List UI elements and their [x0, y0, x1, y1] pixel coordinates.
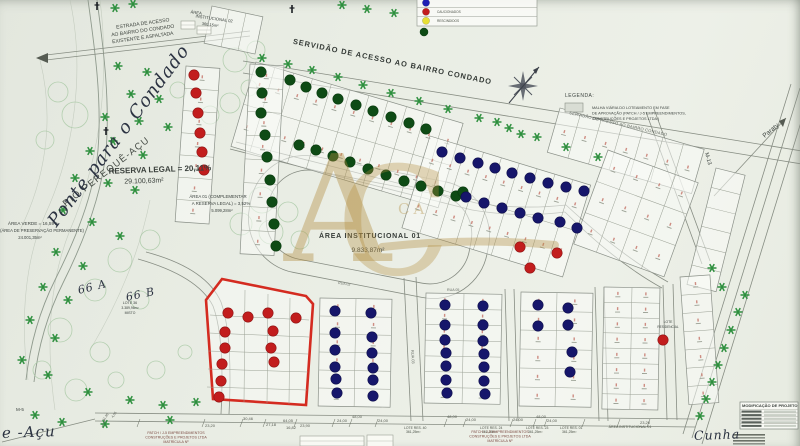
map-label: 24,00	[547, 418, 558, 423]
map-label: 27,18	[266, 422, 277, 427]
tree-center	[711, 381, 713, 383]
tree-icon	[129, 0, 138, 8]
tree-icon	[475, 114, 484, 122]
map-label: DE APROVAÇÃO (PATCH / J-5 EMPREENDIMENTO…	[592, 111, 686, 116]
lot-number-mark	[194, 186, 196, 189]
tree-center	[55, 251, 57, 253]
tree-center	[117, 65, 119, 67]
tree-center	[711, 267, 713, 269]
contour-line	[90, 200, 150, 350]
canopy-circle	[65, 379, 87, 401]
lot-text-mark	[642, 388, 647, 389]
tree-icon	[741, 291, 750, 299]
lot-status-dot-red	[525, 263, 535, 273]
canopy-circle	[291, 231, 309, 249]
tree-icon	[104, 179, 113, 187]
tree-icon	[116, 232, 125, 240]
lot-text-mark	[615, 327, 620, 328]
road-line	[404, 278, 411, 421]
lot-number-mark	[262, 145, 264, 148]
lot-text-mark	[642, 358, 647, 359]
tree-icon	[505, 124, 514, 132]
lot-status-dot-dark_green	[257, 88, 267, 98]
map-label: 23,90	[300, 423, 311, 428]
tree-icon	[493, 118, 502, 126]
lot-status-dot-dark_green	[351, 100, 361, 110]
lot-number-mark	[643, 399, 644, 402]
lot-number-mark	[574, 318, 575, 321]
title-block-cell	[742, 411, 762, 413]
lot-number-mark	[615, 399, 616, 402]
lot-status-dot-dark_green	[333, 94, 343, 104]
tree-center	[597, 156, 599, 158]
compass-rose	[508, 67, 539, 103]
lot-status-dot-navy	[561, 182, 571, 192]
tree-center	[447, 108, 449, 110]
lot-status-dot-dark_green	[386, 112, 396, 122]
legend-box: CAUCIONADOSRESCINDIDOS	[417, 0, 537, 36]
map-label: 48,00	[447, 414, 458, 419]
legend-dot	[422, 8, 429, 15]
tree-icon	[338, 1, 347, 9]
tree-center	[29, 319, 31, 321]
lot-number-mark	[337, 340, 338, 343]
canopy-circle	[36, 131, 54, 149]
tree-icon	[111, 4, 120, 12]
lot-number-mark	[259, 192, 261, 195]
lot-status-dot-navy	[543, 178, 553, 188]
map-label: PATCH / J-5 EMPREENDIMENTOS	[147, 431, 205, 435]
lot-number-mark	[702, 391, 704, 394]
canopy-circle	[140, 230, 160, 250]
tree-icon	[126, 396, 135, 404]
lot-status-dot-navy	[440, 335, 450, 345]
lot-status-dot-dark_green	[345, 157, 355, 167]
lot-status-dot-dark_green	[368, 106, 378, 116]
tree-center	[536, 136, 538, 138]
lot-text-mark	[642, 373, 647, 374]
lot-number-mark	[696, 300, 698, 303]
map-label: RUA 03	[410, 350, 416, 365]
road-line	[673, 284, 677, 420]
lot-status-dot-navy	[330, 345, 340, 355]
lot-number-mark	[695, 282, 697, 285]
map-label: A RESERVA LEGAL) = 3,52%	[192, 201, 251, 206]
lot-status-dot-red	[266, 343, 276, 353]
canopy-circle	[90, 342, 110, 362]
lot-text-mark	[571, 399, 576, 400]
lot-status-dot-dark_green	[294, 140, 304, 150]
lot-status-dot-navy	[533, 300, 543, 310]
tree-center	[311, 69, 313, 71]
tree-center	[195, 401, 197, 403]
lot-status-dot-navy	[479, 376, 489, 386]
map-label: 5.099,28m²	[211, 208, 233, 213]
tree-center	[162, 404, 164, 406]
lot-number-mark	[261, 169, 263, 172]
lot-status-dot-navy	[565, 367, 575, 377]
lot-status-dot-red	[193, 108, 203, 118]
lot-status-dot-navy	[515, 208, 525, 218]
lot-number-mark	[574, 299, 575, 302]
lot-status-dot-red	[243, 312, 253, 322]
map-label: CONSTRUÇÕES E PROJETOS LTDA )	[592, 116, 660, 121]
lot-status-dot-navy	[497, 203, 507, 213]
tree-center	[142, 154, 144, 156]
lot-text-mark	[615, 312, 620, 313]
map-label: 4,05	[111, 411, 118, 419]
legend-outside-green-dot	[420, 28, 428, 36]
lot-status-dot-dark_green	[311, 145, 321, 155]
lot-status-dot-dark_green	[262, 152, 272, 162]
map-label: PATCH / J-5 EMPREENDIMENTOS	[471, 430, 529, 434]
tree-center	[146, 71, 148, 73]
map-label: 48,00	[352, 414, 363, 419]
map-label: ÁREA INSTITUCIONAL 01	[319, 231, 421, 240]
title-block-cell	[764, 414, 796, 416]
tree-icon	[533, 133, 542, 141]
lot-text-mark	[571, 380, 576, 381]
tree-center	[169, 419, 171, 421]
lot-status-dot-red	[191, 88, 201, 98]
tree-center	[104, 423, 106, 425]
map-label: 24,00	[466, 417, 477, 422]
tree-center	[87, 391, 89, 393]
tree-icon	[58, 418, 67, 426]
lot-status-dot-navy	[490, 163, 500, 173]
lot-status-dot-navy	[331, 374, 341, 384]
road-line	[663, 285, 667, 420]
lot-status-dot-navy	[567, 347, 577, 357]
tree-center	[47, 374, 49, 376]
map-label: 361,25m²	[406, 430, 421, 434]
lot-status-dot-navy	[478, 336, 488, 346]
tree-icon	[192, 398, 201, 406]
lot-status-dot-dark_green	[265, 175, 275, 185]
lot-status-dot-dark_green	[301, 82, 311, 92]
canopy-circle	[108, 248, 132, 272]
lot-status-dot-navy	[367, 348, 377, 358]
map-label: RUA 02	[338, 281, 351, 287]
lot-number-mark	[644, 338, 645, 341]
lot-status-dot-navy	[330, 328, 340, 338]
tree-icon	[415, 97, 424, 105]
lot-text-mark	[572, 342, 577, 343]
lot-status-dot-navy	[479, 349, 489, 359]
lot-status-dot-dark_green	[267, 197, 277, 207]
map-label: CONSTRUÇÕES E PROJETOS LTDA	[145, 435, 207, 440]
title-block-cell	[742, 425, 762, 427]
tree-center	[699, 415, 701, 417]
map-label: Paraty	[762, 122, 781, 140]
lot-number-mark	[617, 307, 618, 310]
lot-number-mark	[537, 337, 538, 340]
tree-center	[130, 93, 132, 95]
lot-status-dot-navy	[555, 217, 565, 227]
legend-dot	[422, 0, 429, 6]
map-label: 23,20	[205, 423, 216, 428]
legend-frame	[417, 0, 537, 26]
title-block-cell	[742, 418, 762, 420]
tree-center	[723, 347, 725, 349]
tree-center	[114, 7, 116, 9]
lot-text-mark	[536, 341, 541, 342]
tree-center	[107, 182, 109, 184]
map-label: 24,00	[513, 417, 524, 422]
lot-number-mark	[699, 337, 701, 340]
lot-block	[402, 136, 591, 277]
tree-icon	[114, 62, 123, 70]
tree-icon	[79, 262, 88, 270]
lot-number-mark	[616, 383, 617, 386]
lot-status-dot-navy	[473, 158, 483, 168]
lot-status-dot-navy	[479, 198, 489, 208]
lot-number-mark	[337, 322, 338, 325]
tree-icon	[258, 54, 267, 62]
lot-status-dot-dark_green	[421, 124, 431, 134]
tree-center	[104, 116, 106, 118]
survey-mark	[95, 2, 100, 10]
lot-number-mark	[258, 216, 260, 219]
map-label: 361,25m²	[528, 430, 543, 434]
lot-status-dot-red	[268, 326, 278, 336]
lot-status-dot-navy	[368, 363, 378, 373]
lot-status-dot-red	[291, 313, 301, 323]
tree-icon	[164, 123, 173, 131]
lot-status-dot-dark_green	[285, 75, 295, 85]
lot-status-dot-navy	[441, 348, 451, 358]
lot-number-mark	[482, 330, 483, 333]
lot-status-dot-dark_green	[269, 219, 279, 229]
lot-status-dot-navy	[368, 391, 378, 401]
map-label: (ÁREA DE PRESERVAÇÃO PERMANENTE)	[0, 228, 84, 233]
tree-icon	[101, 113, 110, 121]
title-block-cell	[764, 425, 796, 427]
lot-status-dot-navy	[442, 388, 452, 398]
lot-text-mark	[442, 318, 447, 319]
lot-number-mark	[538, 318, 539, 321]
lot-status-dot-red	[269, 357, 279, 367]
lot-status-dot-red	[223, 308, 233, 318]
title-block-cell	[742, 421, 762, 423]
lot-status-dot-navy	[461, 192, 471, 202]
map-label: MISTO	[125, 311, 136, 315]
lot-status-dot-dark_green	[256, 108, 266, 118]
lot-number-mark	[645, 308, 646, 311]
tree-icon	[517, 130, 526, 138]
lot-text-mark	[614, 373, 619, 374]
lot-status-dot-dark_green	[404, 118, 414, 128]
lot-number-mark	[616, 368, 617, 371]
lot-number-mark	[645, 292, 646, 295]
lot-number-mark	[336, 358, 337, 361]
map-label: 16,82	[286, 425, 297, 430]
tree-icon	[166, 416, 175, 424]
tree-icon	[363, 5, 372, 13]
lot-block	[519, 292, 593, 407]
tree-center	[565, 146, 567, 148]
lot-status-dot-navy	[441, 361, 451, 371]
lot-status-dot-dark_green	[271, 241, 281, 251]
map-label: 11,36	[102, 412, 110, 421]
tree-icon	[334, 73, 343, 81]
tree-icon	[26, 316, 35, 324]
road-line	[505, 289, 509, 421]
title-block-cell	[764, 411, 796, 413]
contour-line	[20, 60, 47, 230]
map-label: 3.389,96m²	[121, 306, 139, 310]
lot-status-dot-dark_green	[399, 176, 409, 186]
map-label: M-5	[16, 407, 24, 412]
map-label: 24,00	[378, 418, 389, 423]
map-label: LEGENDA:	[565, 93, 594, 99]
lot-status-dot-dark_green	[363, 164, 373, 174]
lot-status-dot-red	[189, 70, 199, 80]
tree-center	[134, 189, 136, 191]
lot-status-dot-navy	[579, 186, 589, 196]
lot-text-mark	[614, 388, 619, 389]
lot-status-dot-navy	[455, 153, 465, 163]
title-block-title: MODIFICAÇÃO DE PROJETO	[742, 403, 798, 408]
canopy-circle	[178, 345, 192, 359]
lot-text-mark	[535, 379, 540, 380]
map-label: MATRÍCULA Nº	[487, 439, 513, 443]
lot-status-dot-dark_green	[433, 186, 443, 196]
lot-status-dot-red	[217, 359, 227, 369]
tree-center	[21, 359, 23, 361]
lot-number-mark	[373, 323, 374, 326]
lot-status-dot-dark_green	[416, 181, 426, 191]
lot-number-mark	[617, 322, 618, 325]
road-line	[95, 421, 695, 427]
lot-status-dot-navy	[440, 320, 450, 330]
dim-tick	[444, 419, 447, 427]
lot-status-dot-red	[515, 242, 525, 252]
road-line	[95, 413, 695, 419]
lot-text-mark	[371, 327, 376, 328]
lot-text-mark	[641, 404, 646, 405]
road-line	[416, 277, 423, 421]
tree-center	[744, 294, 746, 296]
lot-status-dot-red	[220, 343, 230, 353]
tree-center	[366, 8, 368, 10]
block-outline	[204, 6, 263, 54]
lot-status-dot-red	[552, 248, 562, 258]
map-label: 9.833,87m²	[352, 247, 386, 254]
lot-status-dot-dark_green	[381, 170, 391, 180]
lot-number-mark	[572, 394, 573, 397]
tree-icon	[718, 283, 727, 291]
lot-number-mark	[198, 120, 200, 123]
map-label: CONSTRUÇÕES E PROJETOS LTDA	[469, 434, 531, 439]
lot-text-mark	[613, 403, 618, 404]
tree-center	[54, 337, 56, 339]
lot-text-mark	[615, 296, 620, 297]
lot-number-mark	[537, 375, 538, 378]
lot-status-dot-red	[214, 392, 224, 402]
lot-text-mark	[615, 342, 620, 343]
tree-center	[362, 84, 364, 86]
tree-center	[91, 221, 93, 223]
subdivision-map: CAUCIONADOSRESCINDIDOSMODIFICAÇÃO DE PRO…	[0, 0, 800, 446]
lot-number-mark	[201, 75, 203, 78]
canopy-circle	[108, 372, 124, 388]
lot-number-mark	[697, 319, 699, 322]
tree-center	[520, 133, 522, 135]
tree-icon	[88, 218, 97, 226]
road-line	[595, 287, 599, 421]
lot-status-dot-dark_green	[256, 67, 266, 77]
mini-box	[367, 435, 393, 446]
lot-text-mark	[371, 345, 376, 346]
site-plan-photo: CAUCIONADOSRESCINDIDOSMODIFICAÇÃO DE PRO…	[0, 0, 800, 446]
lot-text-mark	[535, 398, 540, 399]
lot-status-dot-dark_green	[328, 151, 338, 161]
tree-center	[82, 265, 84, 267]
tree-center	[390, 92, 392, 94]
lot-status-dot-red	[197, 147, 207, 157]
tree-icon	[84, 388, 93, 396]
lot-number-mark	[197, 142, 199, 145]
lot-status-dot-navy	[480, 389, 490, 399]
title-block-cell	[742, 414, 762, 416]
lot-status-dot-navy	[368, 375, 378, 385]
lot-number-mark	[372, 359, 373, 362]
lot-number-mark	[200, 97, 202, 100]
tree-icon	[131, 186, 140, 194]
lot-block	[424, 293, 502, 404]
lot-status-dot-navy	[533, 213, 543, 223]
lot-block	[204, 6, 263, 54]
lot-status-dot-red	[263, 308, 273, 318]
dim-tick	[137, 419, 140, 427]
map-label: SERVIDÃO DE ACESSO AO BAIRRO CONDADO	[292, 37, 493, 87]
lot-number-mark	[444, 314, 445, 317]
stamp-text-bar	[733, 443, 765, 445]
survey-mark	[290, 5, 295, 13]
tree-center	[42, 286, 44, 288]
tree-center	[167, 126, 169, 128]
map-label: RESIDENCIAL	[657, 325, 678, 329]
lot-status-dot-navy	[330, 306, 340, 316]
tree-center	[496, 121, 498, 123]
canopy-circle	[147, 361, 165, 379]
tree-center	[721, 286, 723, 288]
lot-number-mark	[573, 337, 574, 340]
lot-status-dot-navy	[367, 332, 377, 342]
lot-number-mark	[644, 353, 645, 356]
tree-icon	[734, 308, 743, 316]
lot-number-mark	[644, 369, 645, 372]
map-label: ÁREA INSTITUCIONAL 01	[609, 425, 652, 429]
handwriting-cunha: Cunha	[694, 426, 741, 443]
lot-number-mark	[263, 121, 265, 124]
lot-number-mark	[616, 353, 617, 356]
lot-status-dot-navy	[507, 168, 517, 178]
lot-block	[602, 287, 660, 410]
tree-icon	[31, 411, 40, 419]
tree-center	[705, 398, 707, 400]
lot-number-mark	[482, 315, 483, 318]
tree-center	[67, 299, 69, 301]
lot-status-dot-red	[658, 335, 668, 345]
tree-icon	[52, 248, 61, 256]
lot-number-mark	[645, 323, 646, 326]
tree-icon	[18, 356, 27, 364]
lot-status-dot-navy	[478, 320, 488, 330]
handwriting-acu: e -Açu	[2, 422, 56, 442]
tree-center	[34, 414, 36, 416]
